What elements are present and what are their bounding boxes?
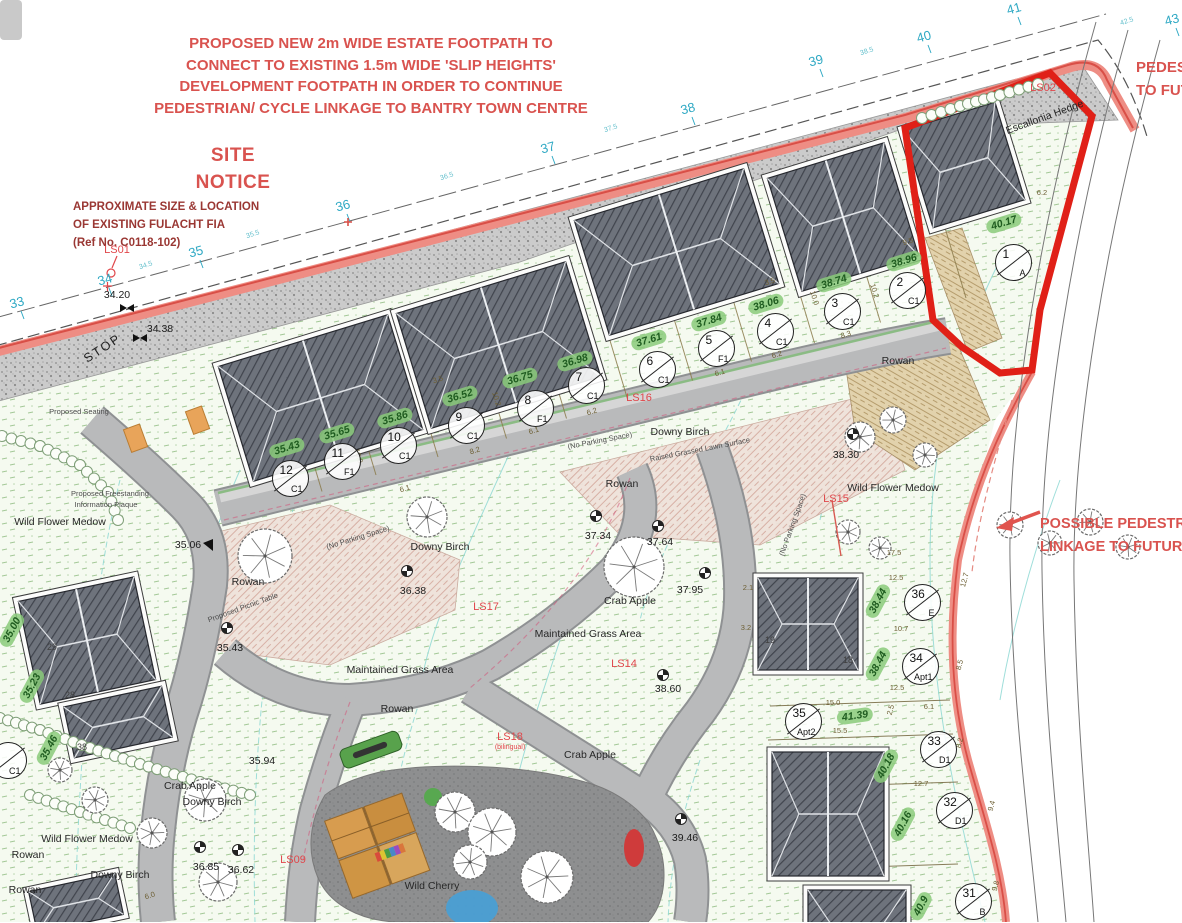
site-plan-page: { "colors":{"annotation_red":"#d9534f","… [0, 0, 1182, 922]
site-plan-canvas [0, 0, 1182, 922]
